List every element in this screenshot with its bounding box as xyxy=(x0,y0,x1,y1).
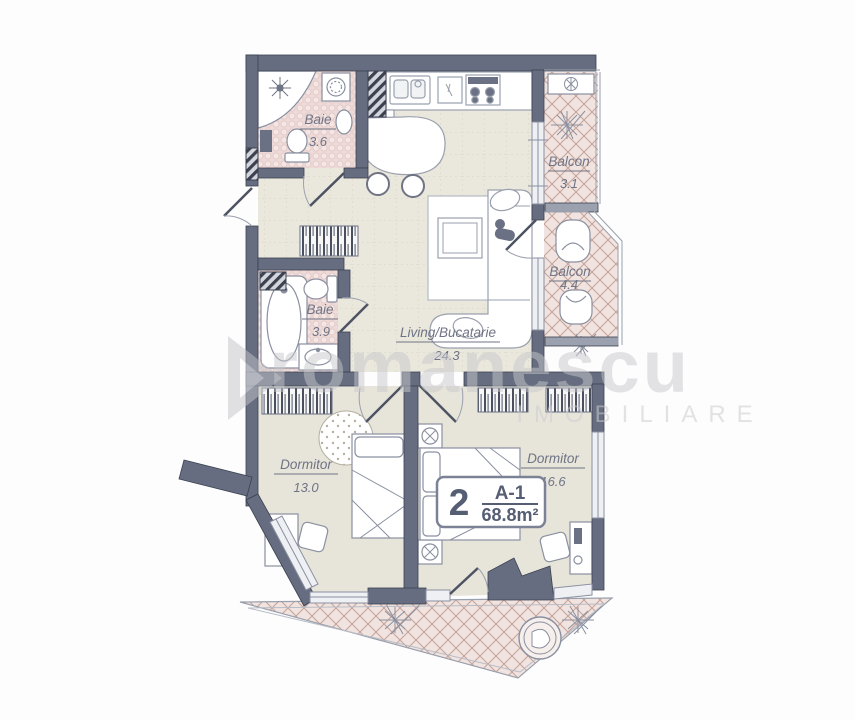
kitchen-sink-icon xyxy=(390,76,430,104)
badge-room-count: 2 xyxy=(449,482,470,523)
balcon2-area: 4.4 xyxy=(560,277,578,292)
toilet-icon xyxy=(287,129,307,153)
baie1-area: 3.6 xyxy=(309,134,328,149)
balcony-chair-icon xyxy=(560,290,592,324)
toilet-icon xyxy=(304,279,328,299)
dorm2-name: Dormitor xyxy=(527,451,579,466)
floorplan-page: Baie 3.6 Baie 3.9 Living/Bucatarie 24.3 … xyxy=(0,0,855,720)
washing-machine-icon xyxy=(322,73,350,101)
pillow xyxy=(355,437,403,457)
wall-living-right-b xyxy=(532,204,544,220)
shower-head-icon xyxy=(269,77,291,99)
hall-wardrobe-icon xyxy=(300,226,358,256)
balcon1-area: 3.1 xyxy=(560,176,578,191)
wall-baie1-bottom-b xyxy=(344,168,368,178)
bar-stool-icon xyxy=(367,173,389,195)
baie2-name: Baie xyxy=(306,302,333,317)
kitchen-island xyxy=(360,117,445,175)
bath-cabinet xyxy=(260,130,272,152)
wall-baie1-right xyxy=(356,71,368,168)
balcon1-name: Balcon xyxy=(548,154,589,169)
chair-icon xyxy=(539,531,571,563)
window-dorm2-right xyxy=(592,432,604,518)
floorplan-canvas: Baie 3.6 Baie 3.9 Living/Bucatarie 24.3 … xyxy=(0,0,855,720)
wall-baie2-right-a xyxy=(338,270,350,298)
window-bottom-b xyxy=(426,590,450,601)
wall-bottom-chunk xyxy=(368,588,426,604)
baie1-name: Baie xyxy=(304,112,331,127)
sink-icon xyxy=(336,110,352,134)
coffee-table-icon xyxy=(438,218,482,258)
wall-top xyxy=(246,55,596,71)
sofa-group xyxy=(428,186,532,348)
shaft-hatch xyxy=(368,71,386,117)
bar-stool-icon xyxy=(402,175,424,197)
small-appliance-icon xyxy=(438,77,462,103)
shaft-hatch xyxy=(246,148,258,180)
unit-badge: 2 A-1 68.8m² xyxy=(437,477,545,527)
stove-icon xyxy=(466,75,500,105)
wall-baie2-top xyxy=(258,258,344,270)
window-bottom-a xyxy=(310,592,368,603)
dorm1-area: 13.0 xyxy=(293,480,319,495)
badge-unit-code: A-1 xyxy=(495,483,526,504)
balcony-chair-icon xyxy=(556,220,590,262)
wall-baie1-bottom-a xyxy=(258,168,304,178)
shaft-hatch xyxy=(260,272,286,290)
entry-door xyxy=(224,188,252,226)
parapet-balcon-divider xyxy=(545,203,598,212)
wall-bedroom-divider xyxy=(404,386,418,594)
watermark-text-1: romanescu xyxy=(269,325,691,408)
dorm1-name: Dormitor xyxy=(280,457,332,472)
nightstand-icon xyxy=(418,424,442,448)
wall-dorm2-right-b xyxy=(592,518,604,590)
nightstand-icon xyxy=(418,540,442,564)
badge-unit-area: 68.8m² xyxy=(481,505,538,525)
wall-fin xyxy=(179,460,252,496)
watermark-text-2: IMOBILIARE xyxy=(516,401,763,428)
wall-living-right-a xyxy=(532,70,544,122)
window-living-balcon2 xyxy=(532,258,544,330)
ac-unit-icon xyxy=(548,74,594,94)
chair-icon xyxy=(297,521,329,553)
terrace-table-icon xyxy=(519,617,561,659)
